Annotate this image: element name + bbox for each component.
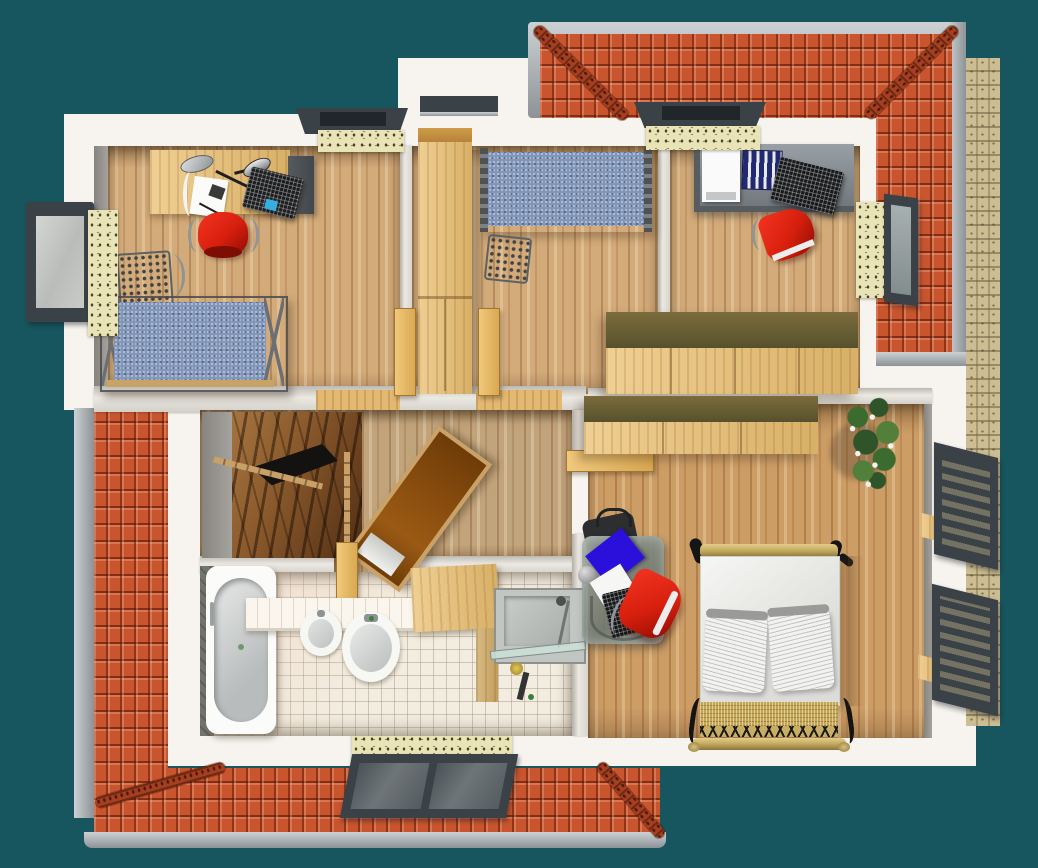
wardrobe-east: [606, 312, 858, 394]
wardrobe-bedroom-seam-1: [662, 422, 664, 454]
bidet: [300, 610, 342, 656]
pillow-left-edge: [706, 608, 768, 620]
chair-west-backrest: [204, 246, 242, 258]
inner-wall-east-face: [924, 404, 932, 738]
window-west-glass: [36, 216, 84, 308]
bed-west-mattress: [114, 302, 266, 382]
window-bedroom-lower: [932, 584, 998, 716]
bathtub: [206, 566, 276, 734]
bed-west-base-strip: [106, 380, 274, 387]
dormer-pane-left: [351, 763, 430, 809]
wardrobe-middle-seam-v: [444, 299, 446, 391]
bed-cap-bottom-left: [688, 742, 700, 752]
bathtub-handle: [210, 602, 214, 626]
bathtub-drain: [238, 644, 244, 650]
bed-foot-lattice: [700, 726, 838, 737]
bed-middle-post-right: [644, 148, 652, 232]
roof-window-north-east-sill: [646, 126, 760, 150]
bed-foot-bar: [692, 738, 846, 750]
open-door-west: [394, 308, 416, 396]
gutter-west: [74, 408, 94, 818]
pillow-left: [702, 612, 768, 693]
stairwell-ledge: [202, 412, 232, 558]
washbasin-tap-dot: [369, 616, 374, 621]
window-east-room-jamb: [856, 202, 886, 298]
bed-cap-bottom-right: [838, 742, 850, 752]
open-door-middle: [478, 308, 500, 396]
pillow-right: [767, 608, 834, 692]
roof-west: [94, 408, 168, 780]
window-bedroom-upper-glass: [942, 454, 990, 556]
dormer-window-south: [340, 754, 518, 818]
window-bedroom-lower-glass: [940, 596, 990, 702]
window-west: [26, 202, 94, 322]
paper-tray-base: [706, 192, 736, 200]
bidet-tap: [317, 610, 325, 617]
window-bedroom-upper: [934, 442, 998, 570]
window-west-jamb: [88, 210, 118, 336]
wardrobe-bedroom-top-face: [584, 396, 818, 422]
dormer-pane-right: [429, 763, 508, 809]
stairwell: [202, 412, 362, 558]
floor-plan-canvas: [0, 0, 1038, 868]
wardrobe-middle-top-face: [418, 128, 472, 142]
wardrobe-east-seam-1: [670, 348, 672, 394]
roof-window-north-east: [634, 102, 766, 128]
shower-head: [556, 596, 566, 606]
stair-steps: [232, 412, 362, 558]
wardrobe-east-seam-3: [798, 348, 800, 394]
bed-side-shadow: [848, 556, 864, 706]
paper-tray-east: [702, 150, 740, 202]
dark-bag-handle: [596, 508, 632, 527]
bidet-bowl: [308, 619, 334, 648]
potted-plant: [838, 396, 904, 492]
bed-middle: [480, 148, 652, 232]
roof-window-north-east-glass: [662, 106, 740, 120]
paper-clip-curve-left: [183, 172, 197, 216]
wooden-bench-top: [410, 564, 499, 632]
desk-east-left-edge: [694, 144, 700, 212]
washbasin-bowl: [350, 624, 392, 672]
window-east-room: [884, 194, 918, 307]
wardrobe-east-front: [606, 348, 858, 394]
wardrobe-bedroom-front: [584, 422, 818, 454]
wardrobe-east-top-face: [606, 312, 858, 348]
floor-faucet-dot: [528, 694, 534, 700]
plant-flowers: [838, 396, 904, 492]
wardrobe-bedroom: [584, 396, 818, 454]
door-sill-west: [316, 390, 400, 410]
washbasin: [342, 612, 400, 682]
roof-window-north-west-glass: [320, 112, 386, 126]
gutter-south: [84, 832, 666, 848]
bed-middle-post-left: [480, 148, 488, 232]
double-bed: [690, 536, 846, 756]
roof-window-north-west-sill: [318, 130, 404, 152]
waste-basket-west-handle: [158, 254, 185, 298]
dormer-cap-edge: [420, 112, 498, 116]
window-east-room-glass: [891, 205, 911, 296]
bed-foot-mat: [700, 702, 838, 726]
laptop-west-sticker: [264, 199, 278, 212]
bed-west: [100, 296, 288, 392]
wardrobe-middle: [418, 128, 472, 394]
bed-west-xbrace-right: [264, 298, 284, 386]
waste-basket-middle: [484, 234, 533, 284]
wardrobe-east-seam-2: [734, 348, 736, 394]
gutter-roof-east-bottom: [876, 352, 966, 366]
floor-faucet-gold: [510, 662, 523, 675]
bed-middle-mattress: [488, 152, 644, 226]
wardrobe-bedroom-seam-2: [740, 422, 742, 454]
